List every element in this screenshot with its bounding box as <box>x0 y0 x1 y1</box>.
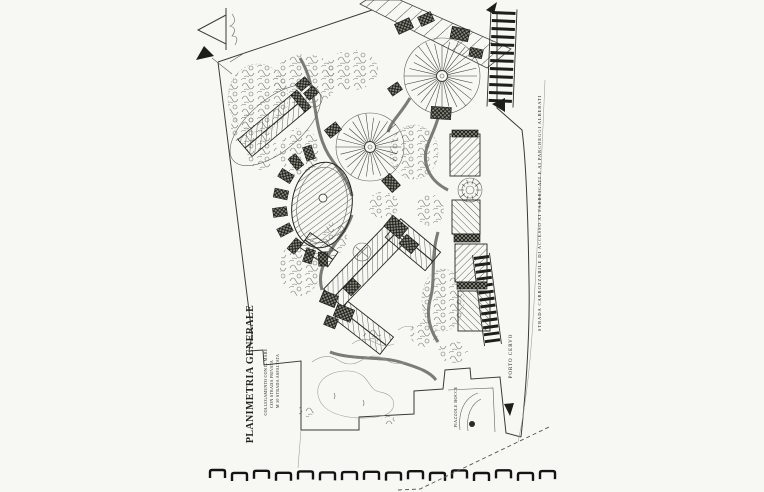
road-annotation: STRADA CARROZZABILE DI ACCESSO AI FABBRI… <box>537 95 542 331</box>
plan-note-3: M 50 STRADA ASFALTATA <box>275 354 280 408</box>
ramp-label: PIAZZOLE BOCCE <box>453 387 458 428</box>
plan-title: PLANIMETRIA GENERALE <box>245 305 256 443</box>
plan-note-1: COLLEGAMENTO CON IL MARE <box>263 348 268 415</box>
site-plan-drawing: PLANIMETRIA GENERALE COLLEGAMENTO CON IL… <box>0 0 764 492</box>
place-label: PORTO CERVO <box>509 334 514 379</box>
scanned-site-plan-page: PLANIMETRIA GENERALE COLLEGAMENTO CON IL… <box>0 0 764 492</box>
plan-note-2: CON STRADA PRIVATA <box>269 360 274 408</box>
